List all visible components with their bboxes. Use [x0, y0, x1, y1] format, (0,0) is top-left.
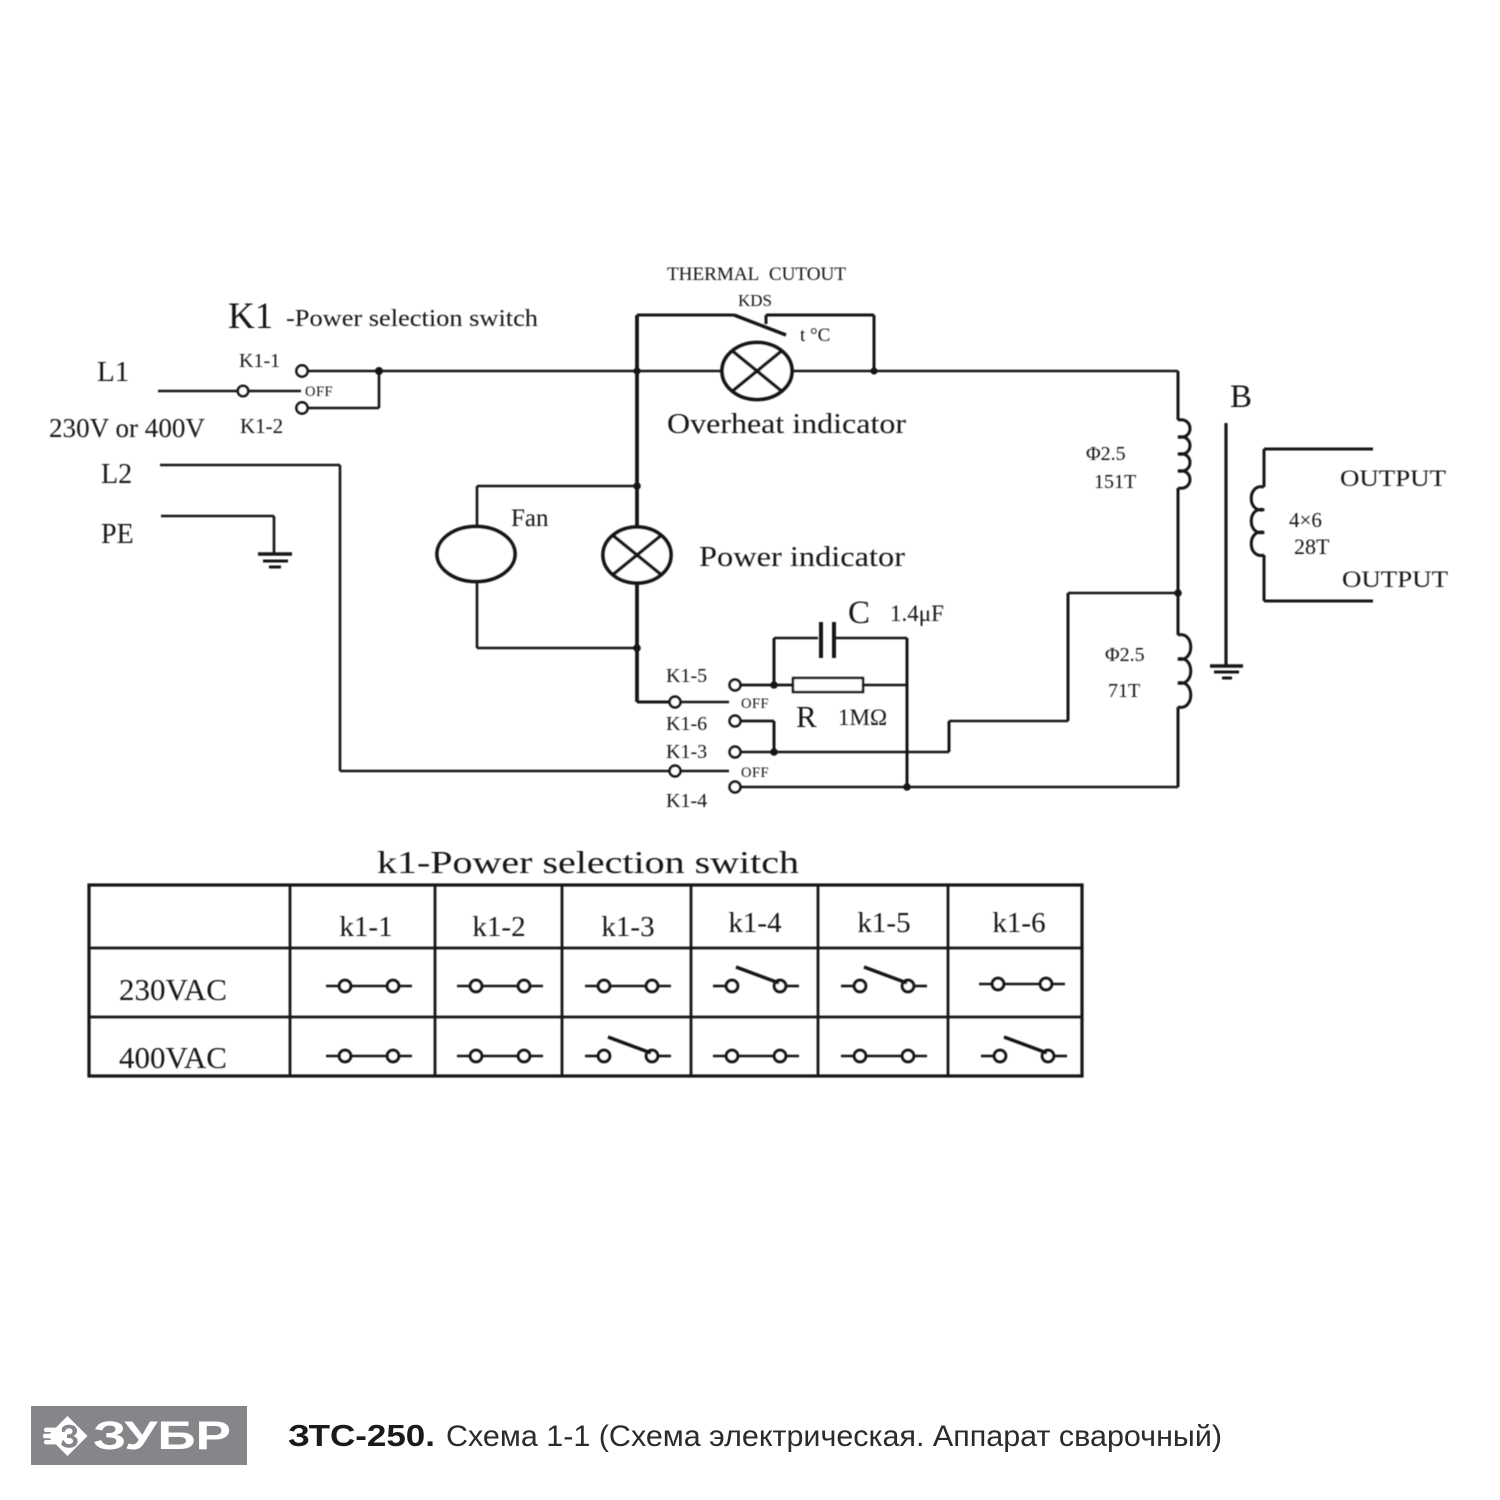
svg-text:OUTPUT: OUTPUT — [1340, 466, 1446, 491]
svg-text:Power indicator: Power indicator — [699, 542, 906, 573]
svg-text:28T: 28T — [1294, 534, 1330, 559]
svg-text:Схема 1-1 (Схема электрическая: Схема 1-1 (Схема электрическая. Аппарат … — [446, 1420, 1222, 1453]
svg-text:k1-5: k1-5 — [857, 907, 910, 939]
svg-text:71T: 71T — [1108, 680, 1140, 702]
svg-text:400VAC: 400VAC — [119, 1040, 227, 1075]
svg-text:230V or 400V: 230V or 400V — [49, 413, 205, 443]
svg-text:OFF: OFF — [741, 765, 769, 781]
svg-text:k1-Power selection switch: k1-Power selection switch — [377, 844, 799, 880]
svg-text:L2: L2 — [101, 459, 132, 490]
svg-text:K1-5: K1-5 — [666, 665, 707, 687]
svg-text:OUTPUT: OUTPUT — [1342, 567, 1448, 592]
svg-text:K1-1: K1-1 — [239, 350, 280, 372]
svg-text:Φ2.5: Φ2.5 — [1105, 644, 1145, 666]
svg-text:ЗТС-250.: ЗТС-250. — [288, 1418, 435, 1453]
svg-text:PE: PE — [101, 519, 134, 550]
svg-text:151T: 151T — [1094, 471, 1136, 493]
svg-text:t °C: t °C — [800, 325, 830, 346]
svg-text:Overheat indicator: Overheat indicator — [667, 408, 906, 440]
svg-text:B: B — [1230, 379, 1252, 415]
svg-text:K1-4: K1-4 — [666, 790, 707, 812]
svg-text:k1-2: k1-2 — [472, 911, 525, 943]
svg-text:C: C — [848, 595, 870, 631]
svg-text:230VAC: 230VAC — [119, 972, 227, 1007]
svg-text:OFF: OFF — [305, 384, 333, 400]
svg-text:K1: K1 — [228, 296, 273, 337]
svg-text:L1: L1 — [97, 356, 129, 388]
svg-text:K1-6: K1-6 — [666, 713, 707, 735]
svg-text:k1-3: k1-3 — [601, 911, 654, 943]
svg-text:k1-4: k1-4 — [728, 907, 782, 939]
svg-text:k1-1: k1-1 — [339, 911, 392, 943]
svg-text:OFF: OFF — [741, 696, 769, 712]
svg-text:4×6: 4×6 — [1289, 508, 1322, 532]
svg-text:K1-2: K1-2 — [240, 414, 283, 438]
svg-text:THERMAL CUTOUT: THERMAL CUTOUT — [667, 264, 846, 285]
svg-text:K1-3: K1-3 — [666, 741, 707, 763]
svg-text:ЗУБР: ЗУБР — [93, 1414, 231, 1458]
svg-text:1MΩ: 1MΩ — [838, 705, 887, 730]
svg-text:-Power selection switch: -Power selection switch — [286, 306, 538, 332]
svg-text:1.4μF: 1.4μF — [890, 601, 944, 626]
svg-text:Fan: Fan — [511, 505, 549, 532]
svg-text:k1-6: k1-6 — [992, 907, 1045, 939]
svg-text:KDS: KDS — [738, 291, 772, 310]
svg-text:Φ2.5: Φ2.5 — [1086, 443, 1126, 465]
svg-text:R: R — [796, 699, 817, 734]
